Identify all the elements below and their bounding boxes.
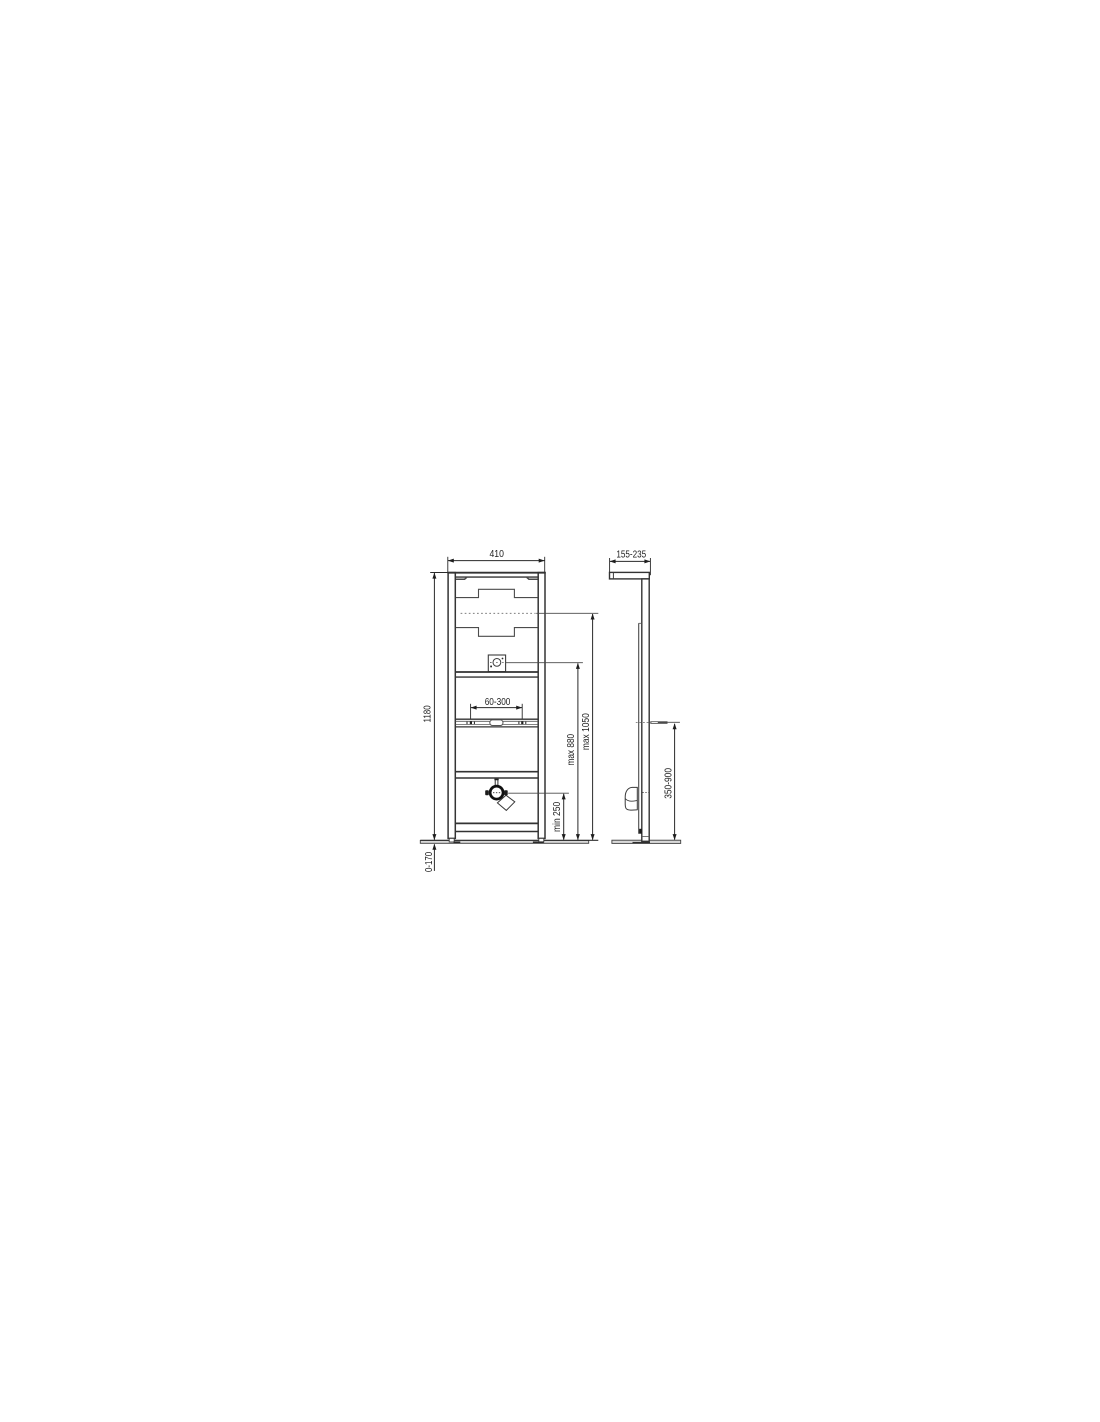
- svg-text:min 250: min 250: [552, 801, 563, 832]
- svg-text:350-900: 350-900: [663, 767, 674, 798]
- svg-text:60-300: 60-300: [485, 697, 511, 708]
- svg-text:410: 410: [490, 549, 505, 560]
- svg-text:max 880: max 880: [566, 733, 577, 765]
- svg-text:155-235: 155-235: [616, 549, 646, 560]
- svg-text:0-170: 0-170: [424, 851, 435, 872]
- svg-text:max 1050: max 1050: [581, 713, 592, 750]
- svg-text:1180: 1180: [423, 705, 434, 723]
